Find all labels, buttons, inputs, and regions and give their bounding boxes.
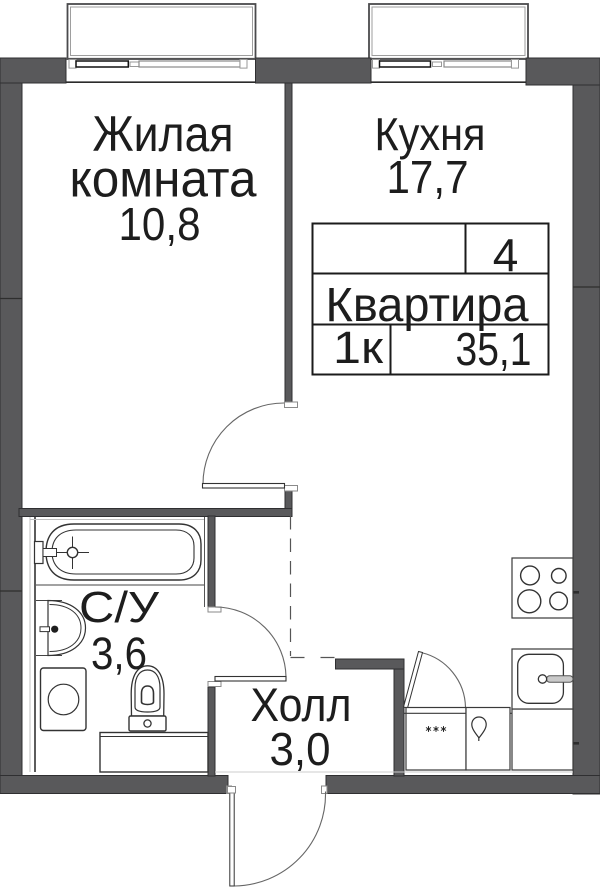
svg-text:3,0: 3,0 bbox=[270, 723, 331, 775]
svg-text:3,6: 3,6 bbox=[91, 628, 147, 679]
svg-text:17,7: 17,7 bbox=[387, 151, 469, 203]
svg-text:С/У: С/У bbox=[79, 583, 160, 632]
svg-text:1к: 1к bbox=[333, 322, 383, 373]
svg-text:10,8: 10,8 bbox=[119, 198, 201, 250]
svg-text:35,1: 35,1 bbox=[456, 323, 532, 375]
svg-text:4: 4 bbox=[493, 229, 519, 281]
